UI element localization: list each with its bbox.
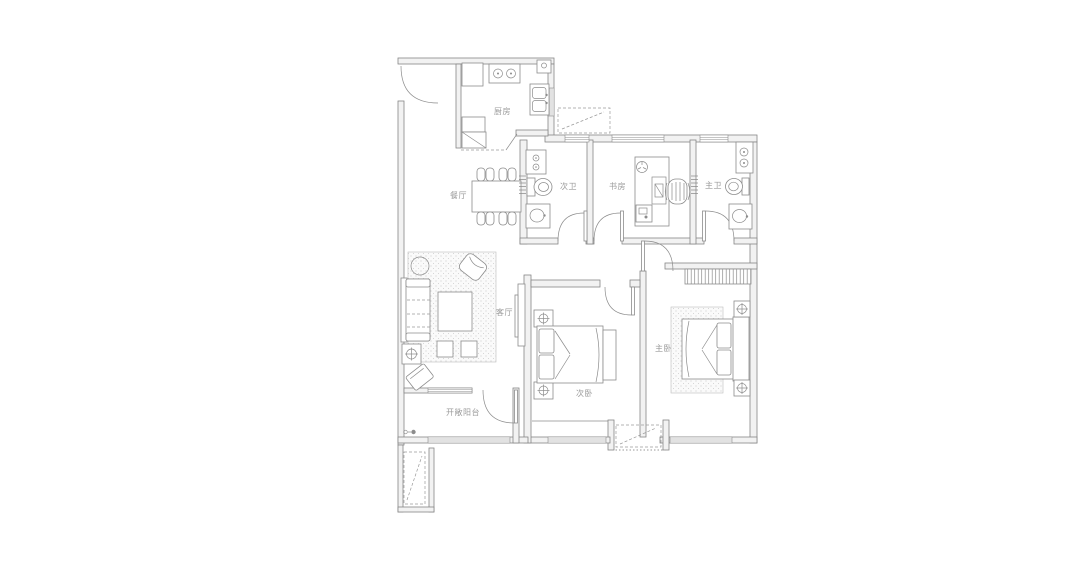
window-bath1-top — [700, 135, 728, 142]
nightstand — [534, 382, 553, 399]
washing-machine — [526, 150, 546, 174]
bath1-furniture — [691, 142, 753, 229]
entry-door — [401, 66, 438, 103]
bed-bench — [603, 330, 616, 380]
room-label-bath-secondary: 次卫 — [560, 183, 577, 191]
room-label-bedroom-secondary: 次卧 — [576, 390, 593, 398]
window-bed1-bottom — [670, 437, 732, 443]
ottoman-1 — [437, 341, 453, 357]
room-label-bath-master: 主卫 — [705, 182, 722, 190]
nightstand — [734, 301, 750, 317]
ac-platform-left — [404, 452, 425, 504]
window-study-top — [612, 135, 664, 142]
balcony-items — [404, 430, 416, 434]
tv-console — [515, 284, 525, 346]
balcony-door — [483, 390, 518, 423]
dining-furniture — [472, 168, 521, 225]
study-door — [594, 211, 624, 241]
room-label-study: 书房 — [609, 183, 626, 191]
stove — [489, 64, 520, 83]
ottoman-2 — [461, 341, 477, 357]
kitchen-cabinet — [462, 117, 486, 148]
bed2-furniture — [534, 310, 616, 399]
window-living-balcony — [428, 388, 472, 393]
bath2-door — [558, 211, 587, 241]
room-label-kitchen: 厨房 — [494, 108, 511, 116]
floorplan-canvas: 厨房 餐厅 次卫 书房 主卫 客厅 次卧 主卧 开敞阳台 const data … — [0, 0, 1074, 576]
vanity-bath1 — [729, 204, 752, 229]
kitchen-sink — [530, 84, 549, 115]
room-label-living: 客厅 — [496, 309, 513, 317]
vanity-bath2 — [526, 204, 550, 228]
bath1-cabinet — [736, 142, 753, 173]
room-label-dining: 餐厅 — [450, 192, 467, 200]
room-label-bedroom-master: 主卧 — [655, 345, 672, 353]
coffee-table — [438, 292, 472, 331]
window-balcony-bottom — [428, 437, 510, 443]
sofa — [401, 278, 430, 342]
bed1-furniture — [671, 269, 751, 396]
nightstand — [734, 380, 750, 396]
bed-secondary — [537, 326, 603, 383]
dining-table — [472, 181, 521, 212]
dining-chairs-bottom — [477, 212, 516, 225]
toilet-bath2 — [527, 178, 552, 196]
floor-drain — [404, 430, 416, 434]
office-chair — [665, 179, 690, 204]
bed2-door — [605, 287, 635, 315]
room-label-balcony: 开敞阳台 — [446, 409, 480, 417]
ac-platform-top — [558, 108, 610, 133]
nightstand — [534, 310, 553, 327]
window-bath2-top — [565, 135, 589, 142]
water-heater — [537, 60, 551, 73]
wardrobe — [685, 269, 751, 284]
window-bed2-bottom — [548, 437, 606, 443]
lounge-chair — [405, 363, 434, 391]
bay-platform-bottom — [612, 425, 667, 450]
study-furniture — [635, 157, 690, 226]
side-table-lamp — [402, 344, 421, 364]
toilet-bath1 — [726, 178, 750, 195]
dining-chairs-top — [477, 168, 516, 181]
living-furniture — [401, 252, 525, 391]
printer — [636, 205, 652, 222]
bed-master — [682, 317, 749, 381]
floorplan-drawing — [0, 0, 1074, 576]
fridge — [462, 63, 483, 86]
